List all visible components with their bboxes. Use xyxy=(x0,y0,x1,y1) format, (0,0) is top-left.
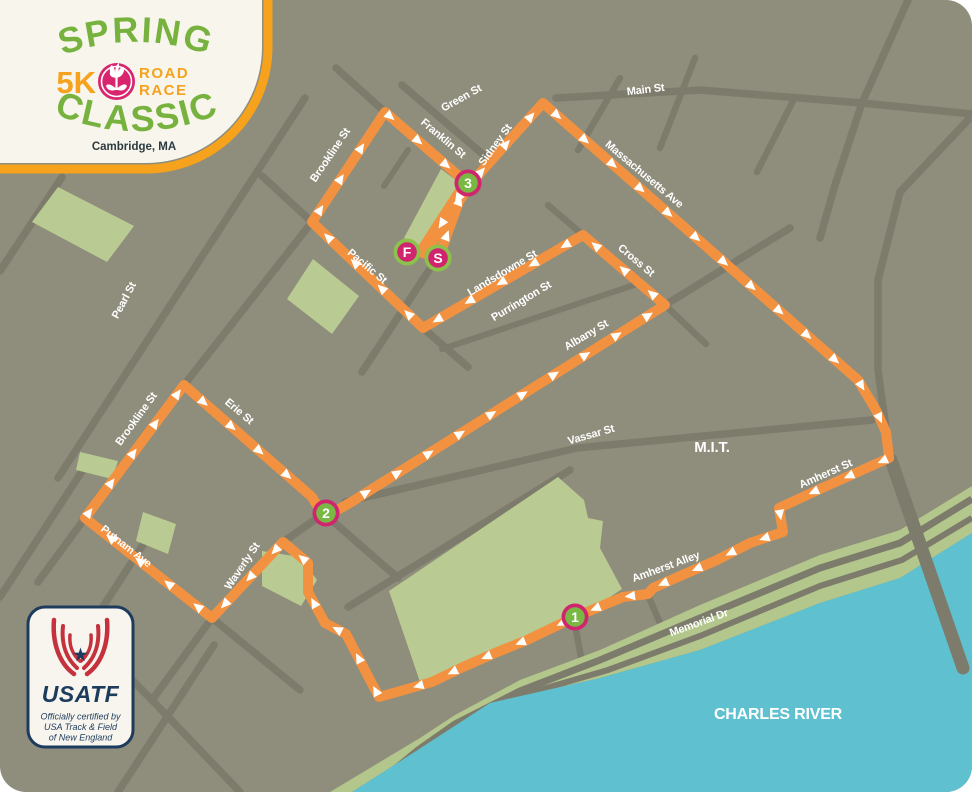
start-marker-s: S xyxy=(425,245,452,272)
usatf-brand: USATF xyxy=(42,681,120,707)
marker-label: 1 xyxy=(571,609,579,625)
usatf-tagline-line-1: Officially certified by xyxy=(40,712,121,722)
race-course-poster: FS123 Green StMain StFranklin StSidney S… xyxy=(0,0,972,792)
usatf-tagline-line-3: of New England xyxy=(49,733,114,743)
mile-marker-3: 3 xyxy=(455,170,482,197)
mile-marker-2: 2 xyxy=(313,500,340,527)
marker-label: 2 xyxy=(322,505,330,521)
mile-marker-1: 1 xyxy=(562,604,589,631)
marker-label: F xyxy=(403,244,412,260)
marker-label: 3 xyxy=(464,175,472,191)
event-location: Cambridge, MA xyxy=(92,141,176,153)
course-map-svg: FS123 Green StMain StFranklin StSidney S… xyxy=(0,0,972,792)
usatf-tagline-line-2: USA Track & Field xyxy=(44,722,118,732)
finish-marker-f: F xyxy=(394,239,421,266)
street-label: CHARLES RIVER xyxy=(714,706,843,723)
usatf-badge: USATF Officially certified by USA Track … xyxy=(28,607,133,747)
flower-icon xyxy=(98,63,135,100)
road-label: ROAD xyxy=(139,65,189,82)
street-label: M.I.T. xyxy=(694,439,729,456)
marker-label: S xyxy=(433,250,442,266)
